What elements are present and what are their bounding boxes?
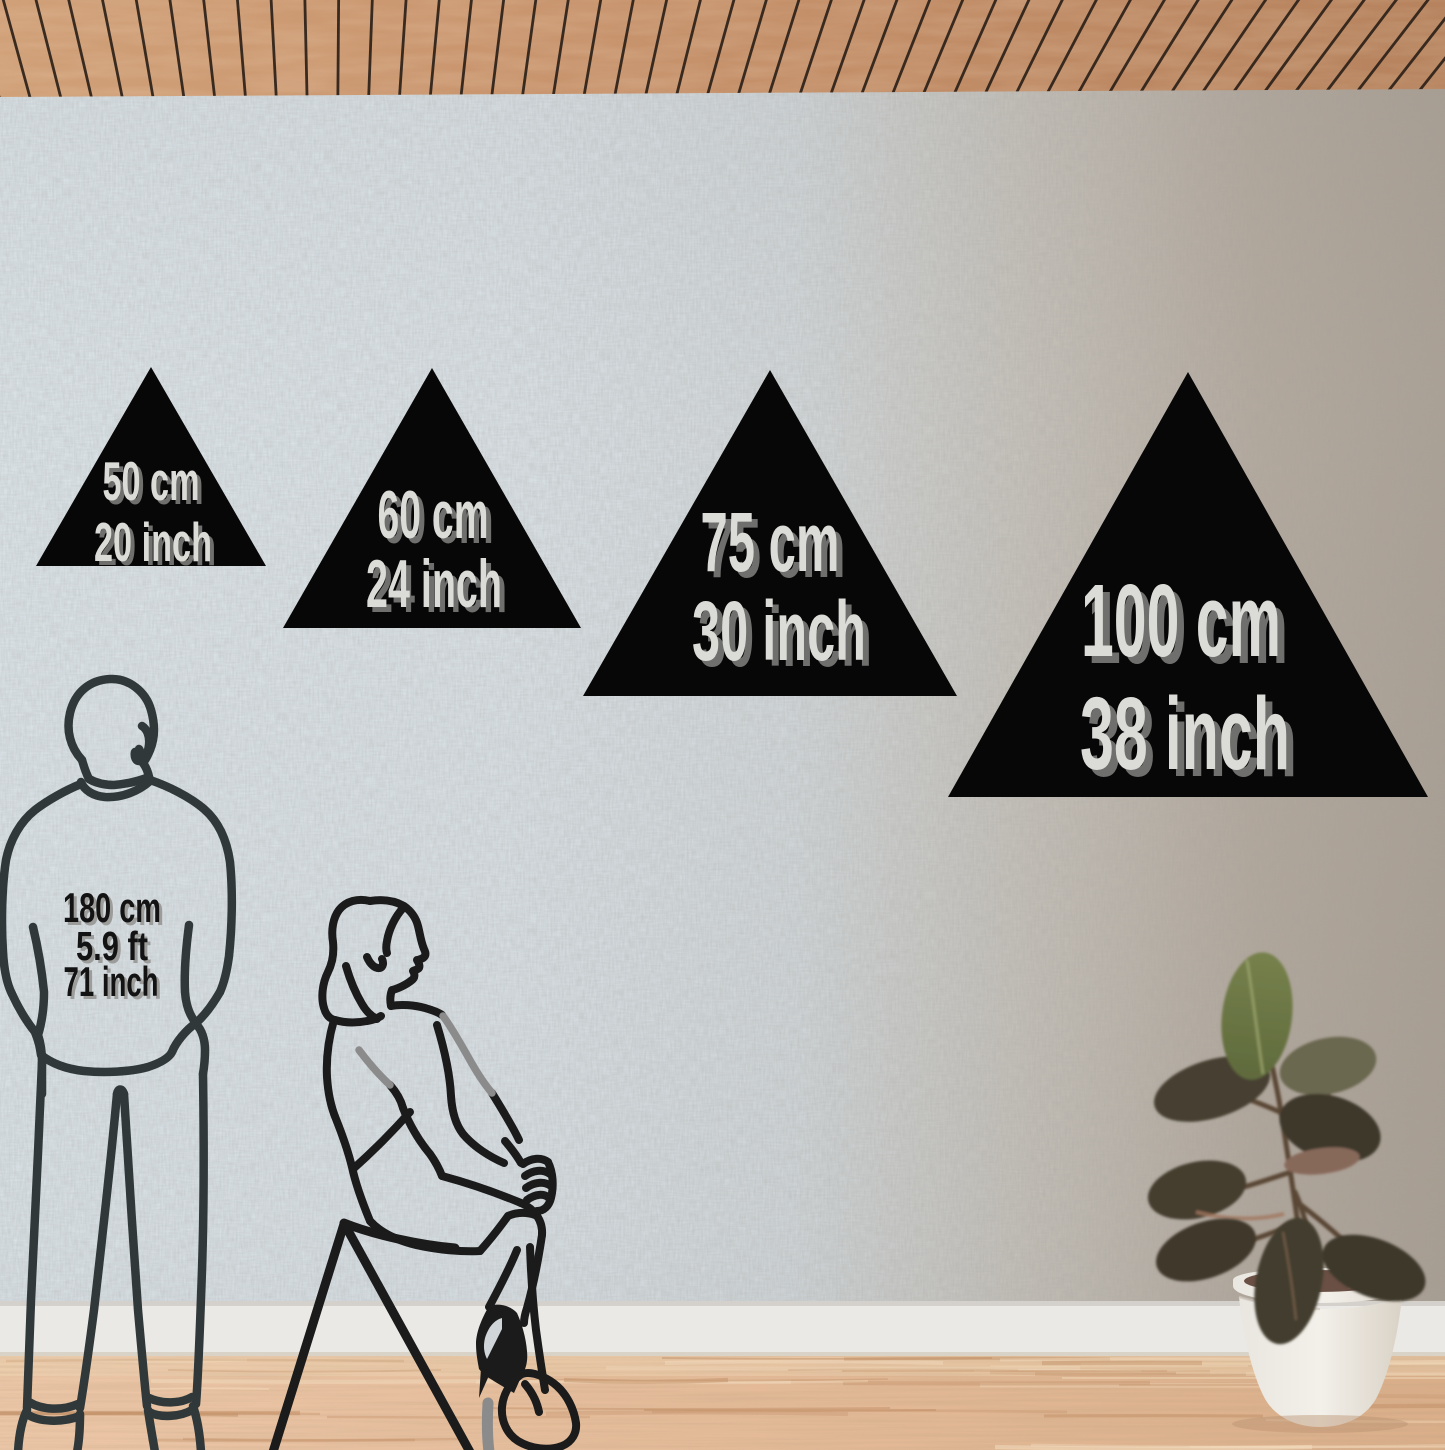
svg-text:71 inch: 71 inch bbox=[64, 958, 159, 1005]
svg-text:20 inch: 20 inch bbox=[94, 511, 212, 573]
svg-text:50 cm: 50 cm bbox=[103, 450, 200, 512]
svg-text:75 cm: 75 cm bbox=[701, 495, 840, 589]
svg-text:24 inch: 24 inch bbox=[366, 546, 502, 622]
svg-text:60 cm: 60 cm bbox=[378, 477, 489, 553]
svg-text:100 cm: 100 cm bbox=[1081, 563, 1281, 678]
svg-text:38 inch: 38 inch bbox=[1080, 676, 1290, 791]
svg-text:30 inch: 30 inch bbox=[692, 584, 866, 678]
